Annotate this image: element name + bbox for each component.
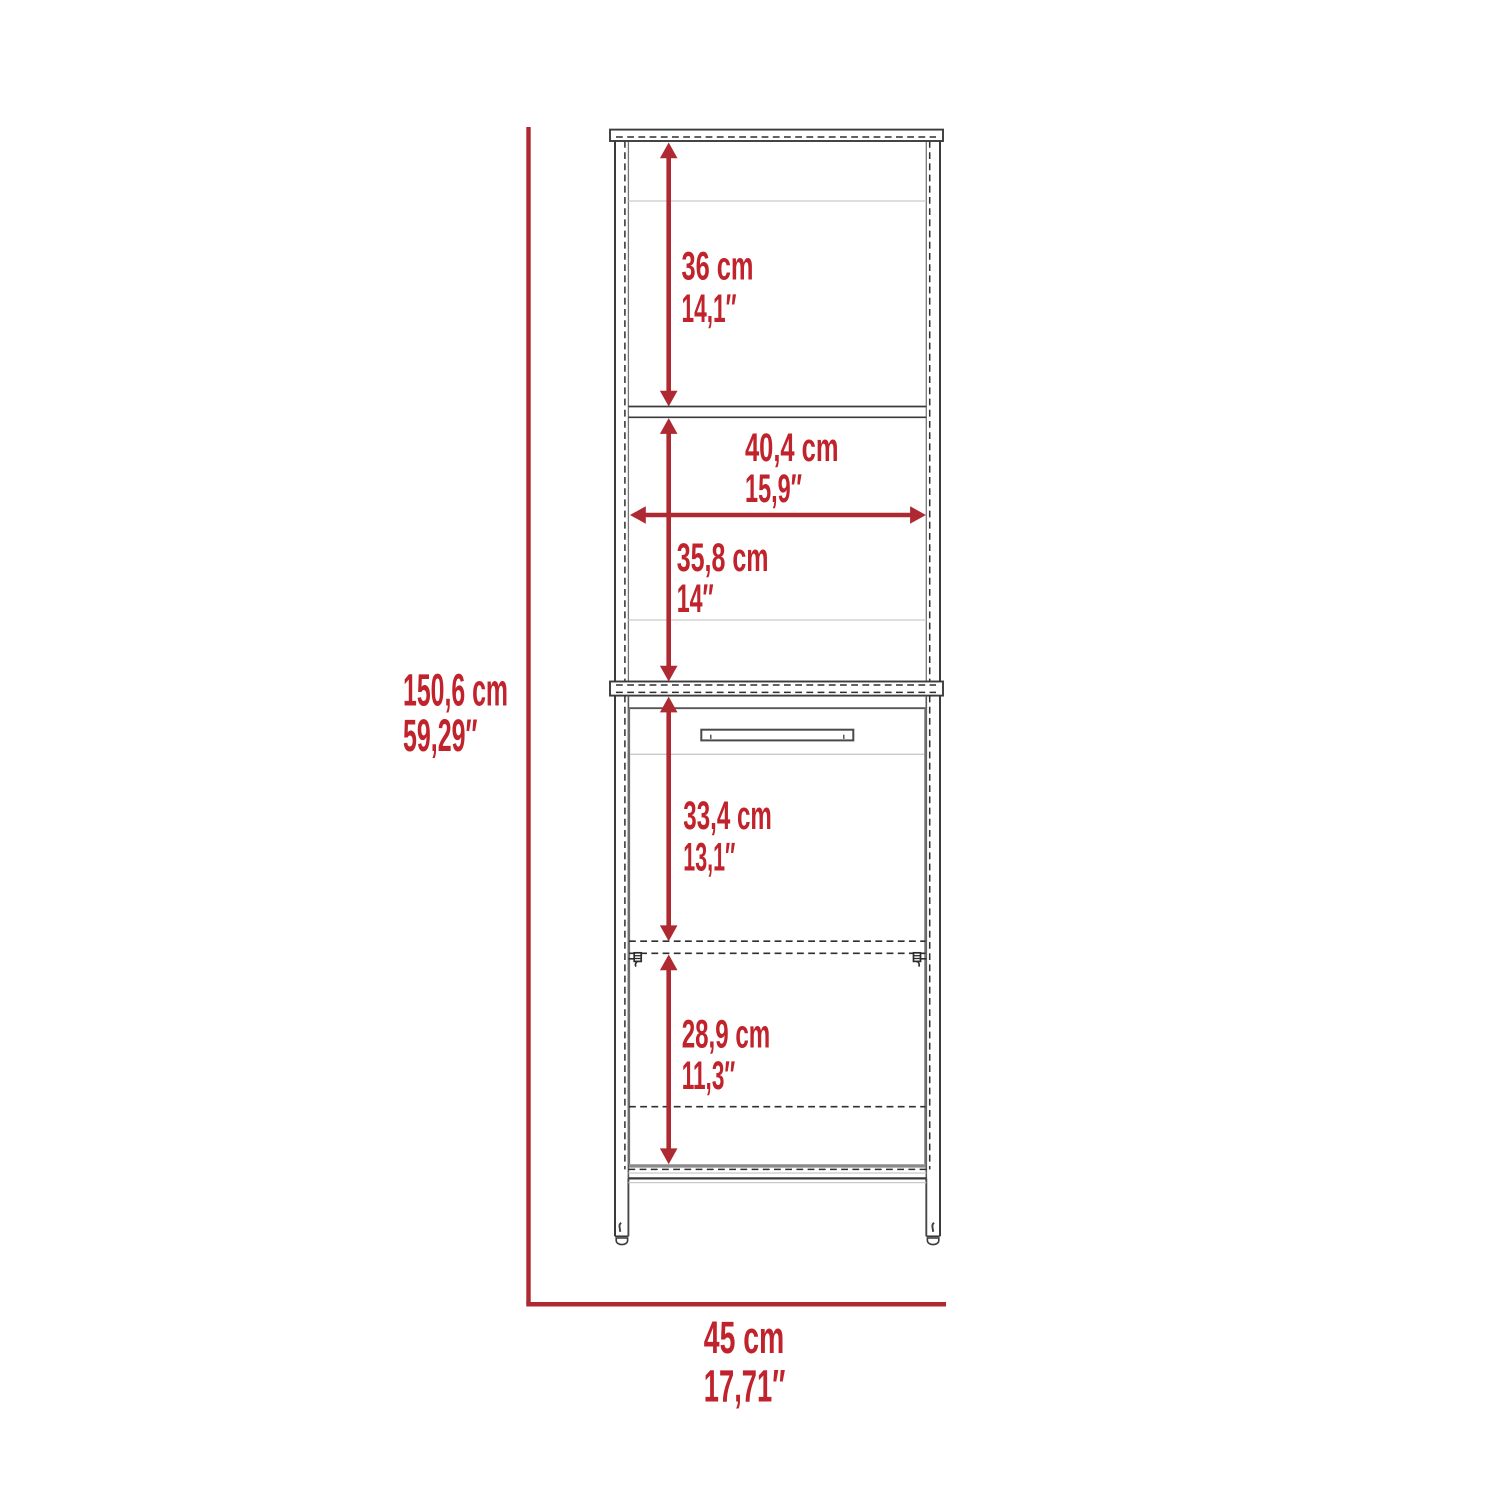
svg-text:14,1″: 14,1″ <box>682 287 737 331</box>
svg-text:150,6 cm: 150,6 cm <box>403 665 508 716</box>
svg-text:15,9″: 15,9″ <box>745 467 802 511</box>
svg-text:17,71″: 17,71″ <box>704 1361 786 1412</box>
svg-text:14″: 14″ <box>677 577 714 621</box>
svg-text:45 cm: 45 cm <box>704 1312 785 1363</box>
svg-text:28,9 cm: 28,9 cm <box>682 1013 771 1057</box>
svg-text:40,4 cm: 40,4 cm <box>745 426 839 470</box>
svg-text:11,3″: 11,3″ <box>682 1054 736 1098</box>
svg-text:35,8 cm: 35,8 cm <box>677 536 769 580</box>
svg-text:36 cm: 36 cm <box>682 245 754 289</box>
svg-text:59,29″: 59,29″ <box>403 710 478 761</box>
svg-text:33,4 cm: 33,4 cm <box>683 794 772 838</box>
svg-text:13,1″: 13,1″ <box>683 836 735 880</box>
